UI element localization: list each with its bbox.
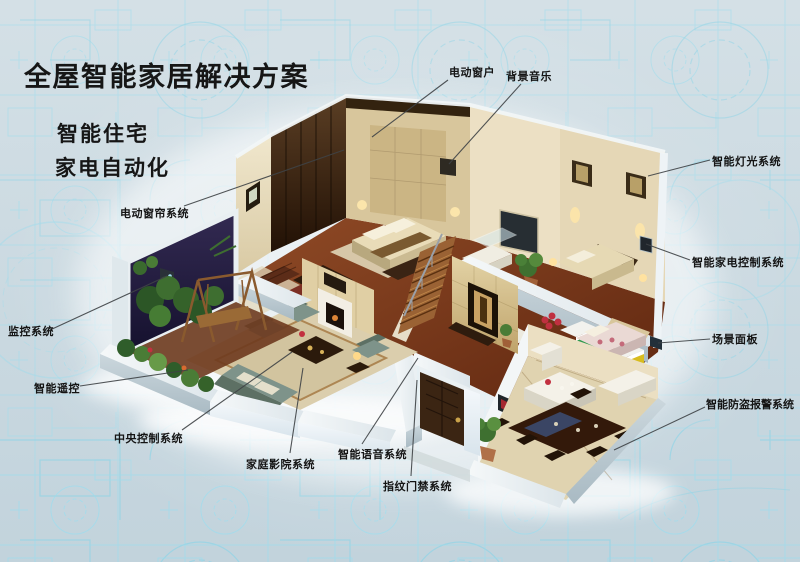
subtitle-smart-residence: 智能住宅 — [57, 118, 149, 148]
smart-home-infographic: 全屋智能家居解决方案 智能住宅 家电自动化 电动窗户 背景音乐 智能灯光系统 智… — [0, 0, 800, 562]
callout-scene-panel: 场景面板 — [712, 331, 758, 347]
callout-electric-curtain: 电动窗帘系统 — [120, 205, 189, 221]
callout-voice-system: 智能语音系统 — [338, 446, 407, 462]
callout-background-music: 背景音乐 — [506, 68, 552, 84]
wall-speaker — [440, 158, 456, 176]
page-title: 全屋智能家居解决方案 — [24, 55, 309, 94]
fingerprint-lock — [456, 418, 461, 423]
subtitle-appliance-automation: 家电自动化 — [55, 152, 170, 182]
callout-electric-window: 电动窗户 — [449, 64, 495, 80]
callout-smart-appliance-control: 智能家电控制系统 — [692, 254, 784, 270]
callout-home-theater: 家庭影院系统 — [246, 456, 315, 472]
callout-burglar-alarm: 智能防盗报警系统 — [706, 396, 794, 412]
callout-monitoring: 监控系统 — [8, 323, 54, 339]
callout-smart-remote: 智能遥控 — [34, 380, 80, 396]
callout-smart-lighting: 智能灯光系统 — [712, 153, 781, 169]
callout-central-control: 中央控制系统 — [114, 430, 183, 446]
callout-fingerprint-access: 指纹门禁系统 — [383, 478, 452, 494]
